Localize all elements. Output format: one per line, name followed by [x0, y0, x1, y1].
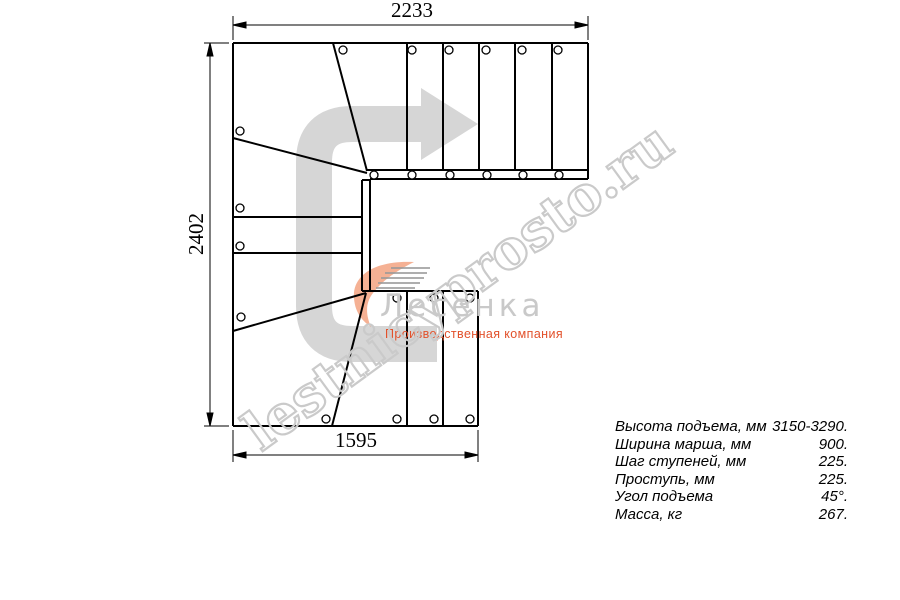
dimension-top-width: 2233 [362, 0, 462, 21]
dimension-left-height: 2402 [185, 184, 207, 284]
spec-row: Проступь, мм 225. [615, 471, 848, 489]
spec-row: Угол подъема 45°. [615, 488, 848, 506]
spec-value: 900. [819, 436, 848, 454]
dimension-bottom-width: 1595 [306, 429, 406, 451]
spec-label: Ширина марша, мм [615, 436, 751, 454]
specifications-table: Высота подъема, мм 3150-3290. Ширина мар… [615, 418, 848, 523]
spec-label: Проступь, мм [615, 471, 715, 489]
spec-value: 45°. [821, 488, 848, 506]
spec-value: 225. [819, 471, 848, 489]
spec-row: Шаг ступеней, мм 225. [615, 453, 848, 471]
spec-value: 225. [819, 453, 848, 471]
spec-value: 3150-3290. [772, 418, 848, 436]
spec-label: Угол подъема [615, 488, 713, 506]
spec-row: Ширина марша, мм 900. [615, 436, 848, 454]
spec-label: Масса, кг [615, 506, 682, 524]
spec-label: Высота подъема, мм [615, 418, 767, 436]
spec-row: Масса, кг 267. [615, 506, 848, 524]
spec-row: Высота подъема, мм 3150-3290. [615, 418, 848, 436]
spec-value: 267. [819, 506, 848, 524]
spec-label: Шаг ступеней, мм [615, 453, 746, 471]
staircase-drawing-page: 2233 2402 1595 Лесенка Производственная … [0, 0, 900, 600]
